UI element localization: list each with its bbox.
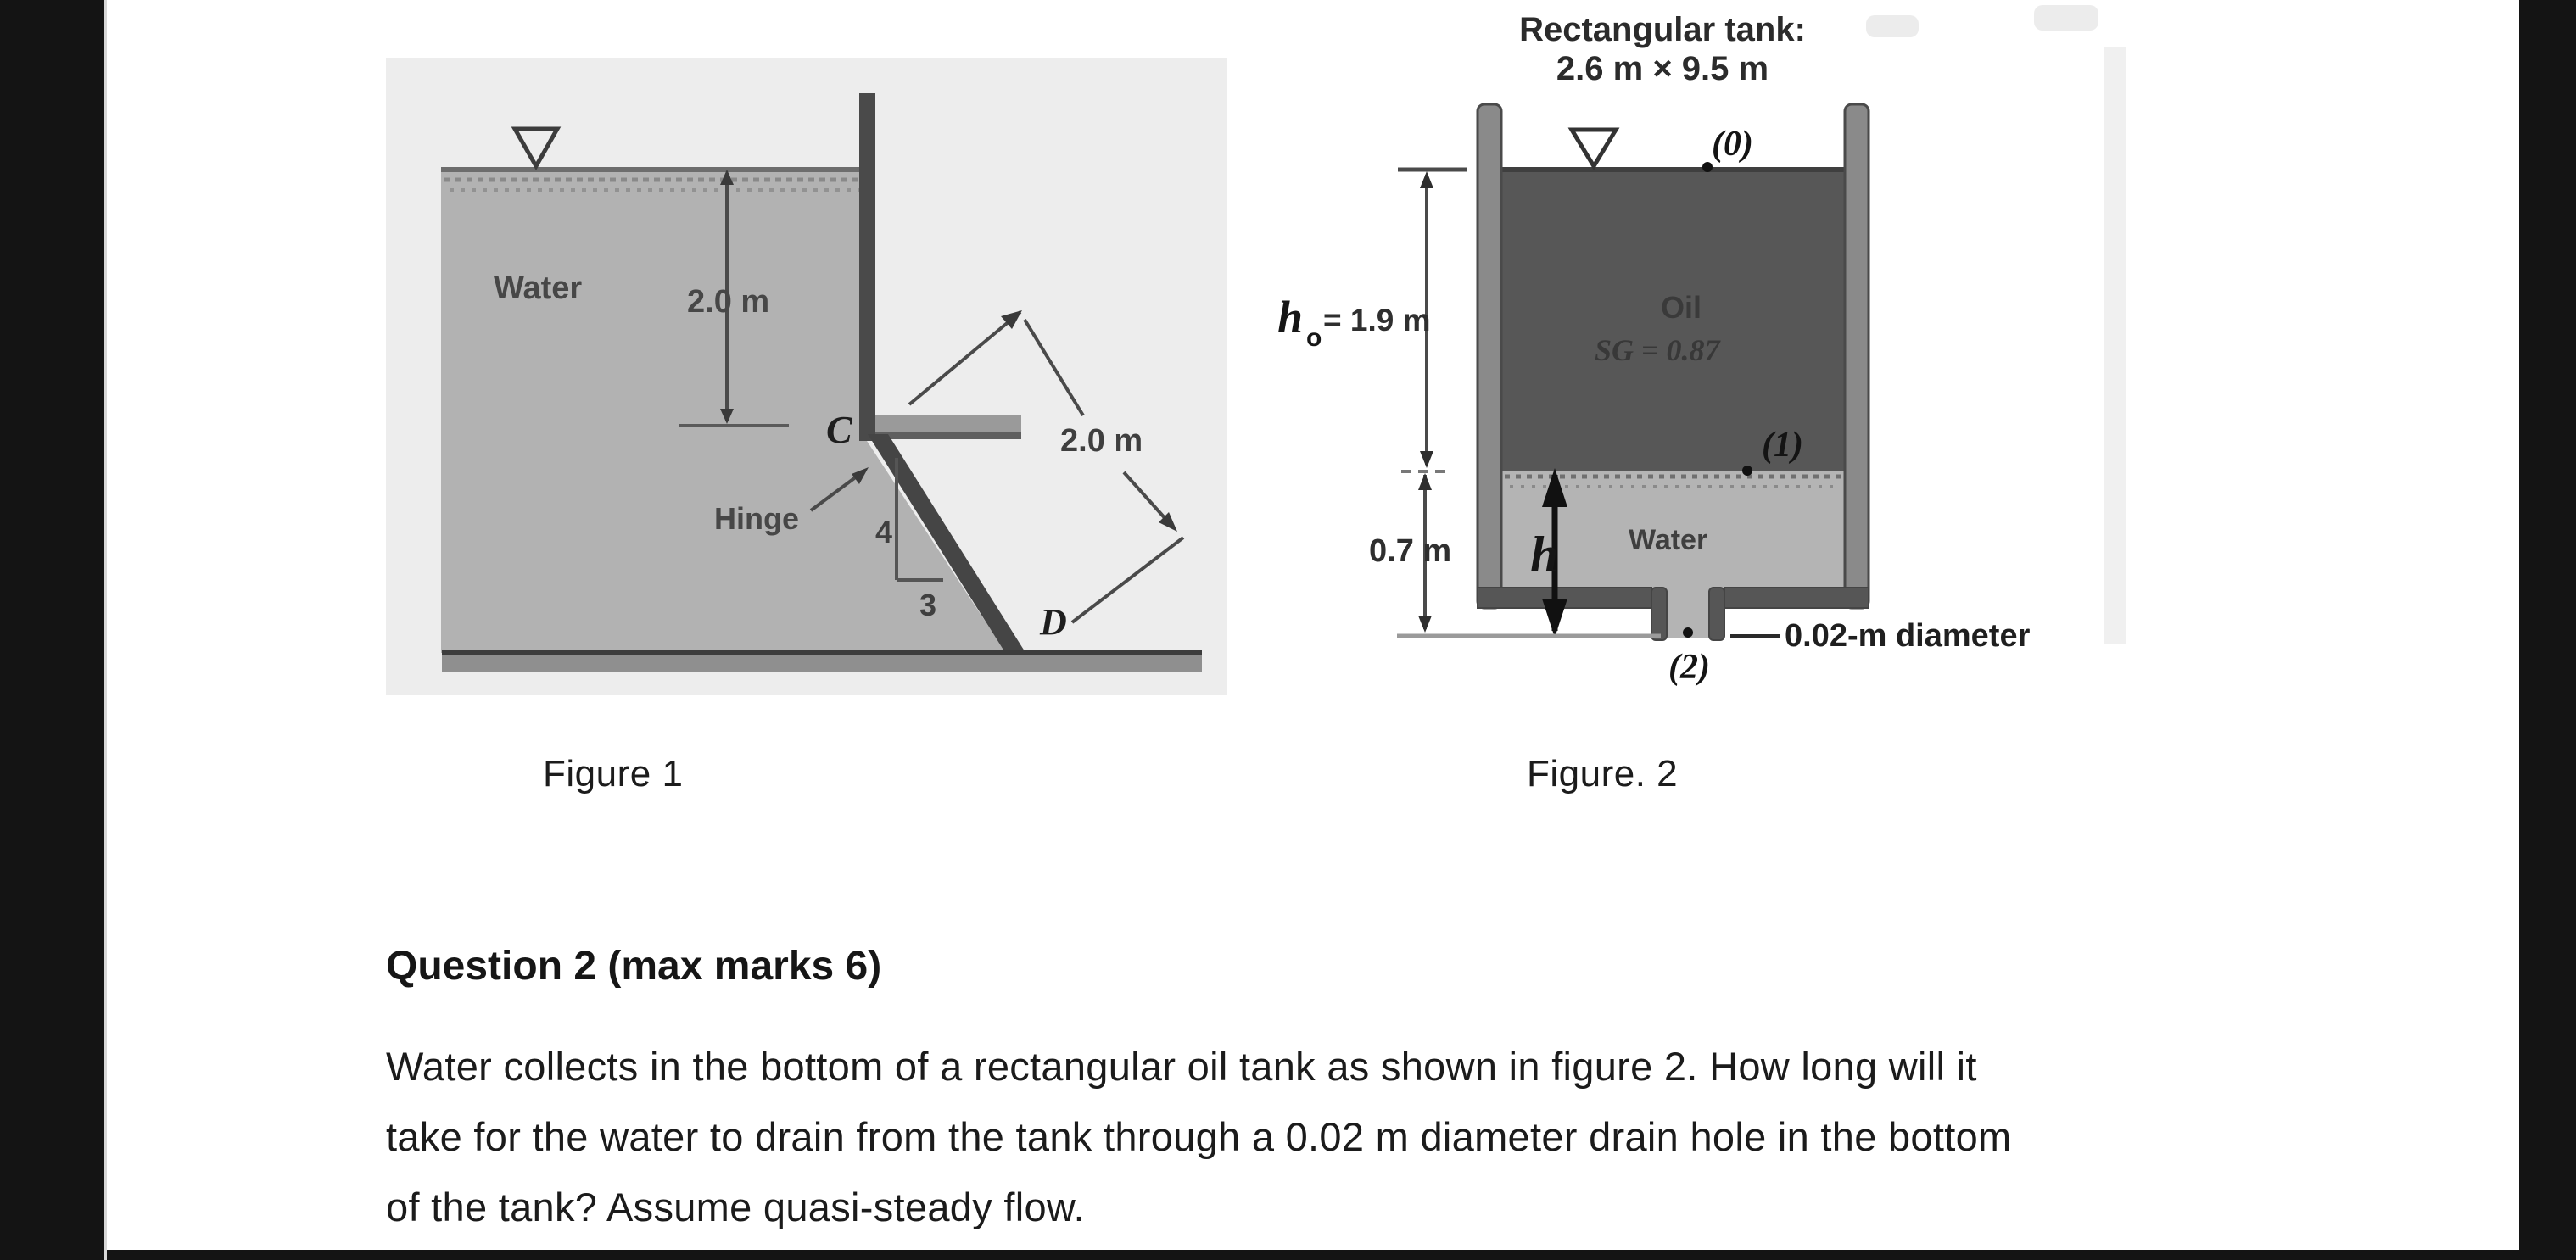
figure2-title-line1: Rectangular tank:	[1519, 11, 1806, 48]
figure1-hinge-label: Hinge	[714, 501, 799, 536]
question-body: Water collects in the bottom of a rectan…	[386, 1041, 2011, 1252]
figure2-funnel-right-wall	[1709, 588, 1724, 640]
figure2-water-dim-arrow-down	[1418, 616, 1432, 633]
question-body-line: Water collects in the bottom of a rectan…	[386, 1041, 2011, 1112]
figure2-water-label: Water	[1629, 524, 1707, 556]
figure2-oil-label: Oil	[1661, 290, 1702, 325]
figure1-slope-run-label: 3	[919, 588, 936, 622]
figure2-drain-note: 0.02-m diameter	[1785, 618, 2031, 654]
figure2-oil-height-sub: o	[1306, 324, 1322, 352]
question-heading: Question 2 (max marks 6)	[386, 943, 881, 990]
figure2-water-dim-arrow-up	[1418, 473, 1432, 490]
figure1-top-bar	[875, 415, 1021, 432]
figure2-diagram: Rectangular tank: 2.6 m × 9.5 m (0) (1) …	[1255, 0, 2129, 746]
figure2-varying-height-label: h	[1530, 527, 1558, 583]
figure1-point-c-label: C	[826, 408, 853, 451]
figure2-caption: Figure. 2	[1527, 753, 1678, 795]
water-surface-icon	[1572, 130, 1616, 166]
right-letterbox-bar	[2519, 0, 2576, 1260]
document-page: Water 2.0 m C Hinge 4 3 D 2.0 m Rectangu…	[0, 0, 2576, 1260]
figure2-scan-band	[2104, 47, 2126, 644]
figure2-h-dim-arrow-down	[1542, 599, 1567, 638]
figure1-point-d-label: D	[1039, 601, 1067, 643]
figure2-oil-sg-label: SG = 0.87	[1595, 333, 1722, 367]
figure2-bottom-right	[1724, 588, 1869, 608]
figure2-oil-height-symbol: h	[1277, 292, 1303, 343]
figure1-gate-length-label: 2.0 m	[1060, 423, 1143, 459]
figure2-scan-smudge-2	[2034, 5, 2098, 31]
figure2-station1-label: (1)	[1762, 426, 1803, 465]
figure2-oil-surface-line	[1501, 167, 1845, 172]
figure1-water-surface-line	[441, 167, 867, 172]
figure2-right-wall	[1845, 104, 1869, 608]
figure2-scan-smudge-1	[1866, 15, 1919, 37]
figure1-caption: Figure 1	[543, 753, 683, 795]
page-edge-line	[104, 0, 107, 1260]
figure2-left-wall	[1478, 104, 1501, 608]
figure2-station2-label: (2)	[1668, 648, 1710, 687]
figure1-ground-band	[442, 655, 1202, 672]
figure1-ground-line	[442, 650, 1202, 655]
question-body-line: of the tank? Assume quasi-steady flow.	[386, 1182, 2011, 1252]
figure1-top-bar-edge	[875, 432, 1021, 439]
figure2-title-line2: 2.6 m × 9.5 m	[1556, 50, 1769, 87]
figure2-oil-height-value: = 1.9 m	[1323, 303, 1431, 337]
figure1-slope-rise-label: 4	[875, 515, 892, 549]
figure1-diagram: Water 2.0 m C Hinge 4 3 D 2.0 m	[386, 58, 1227, 695]
figure2-oil-dim-arrow-down	[1420, 451, 1433, 468]
question-body-line: take for the water to drain from the tan…	[386, 1112, 2011, 1182]
figure2-funnel-left-wall	[1651, 588, 1667, 640]
left-letterbox-bar	[0, 0, 104, 1260]
figure1-water-label: Water	[494, 270, 582, 306]
figure1-depth-label: 2.0 m	[687, 284, 769, 320]
figure2-station0-label: (0)	[1712, 125, 1753, 164]
figure1-wall	[859, 93, 875, 441]
figure2-station2-dot	[1683, 627, 1693, 638]
figure2-oil-dim-arrow-up	[1420, 171, 1433, 188]
figure2-water-height-label: 0.7 m	[1369, 533, 1451, 569]
figure2-station1-dot	[1742, 466, 1752, 476]
